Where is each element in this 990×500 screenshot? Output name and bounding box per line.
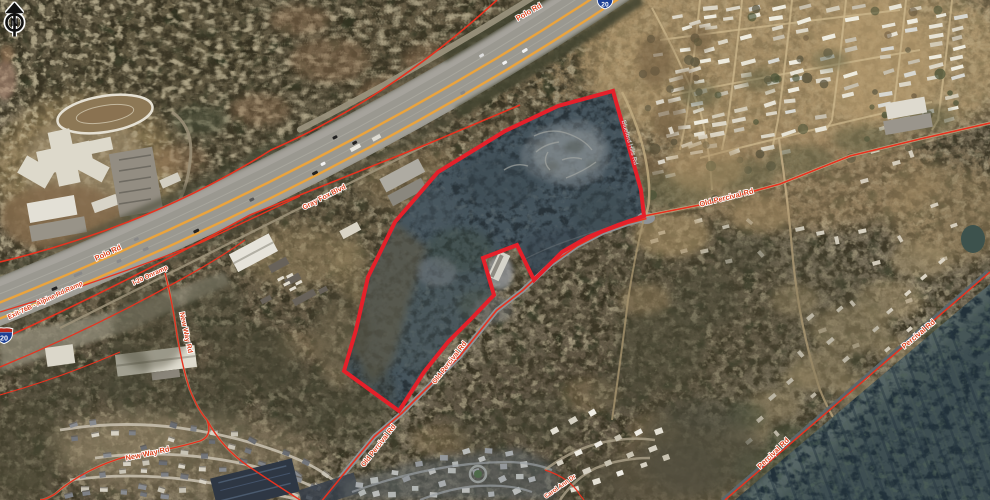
svg-text:N: N [11, 17, 19, 29]
svg-text:20: 20 [0, 334, 8, 343]
svg-text:20: 20 [601, 0, 609, 8]
